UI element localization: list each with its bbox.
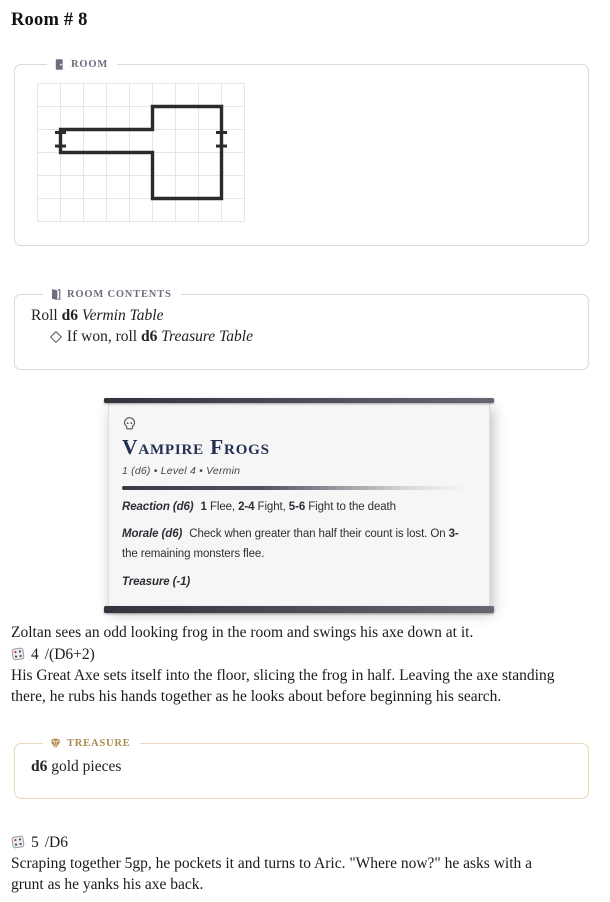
card-top-bar bbox=[104, 398, 494, 403]
story-paragraph-2: His Great Axe sets itself into the floor… bbox=[0, 665, 610, 707]
treasure-panel: TREASURE d6 gold pieces bbox=[14, 737, 589, 799]
page-title: Room # 8 bbox=[11, 10, 610, 31]
story-paragraph-1: Zoltan sees an odd looking frog in the r… bbox=[0, 622, 610, 643]
contents-subline-text: If won, roll d6 Treasure Table bbox=[67, 328, 253, 345]
treasure-legend: TREASURE bbox=[43, 737, 140, 750]
story-paragraph-1-text: Zoltan sees an odd looking frog in the r… bbox=[11, 624, 473, 641]
treasure-label: TREASURE bbox=[67, 738, 131, 749]
journal-page: Room # 8 ROOM ROOM CONTENTS Roll d6 Verm… bbox=[0, 10, 610, 895]
door-icon bbox=[53, 58, 66, 71]
skull-icon bbox=[122, 416, 137, 431]
roll-result: 5 bbox=[31, 832, 39, 853]
morale-stat: Morale (d6)Check when greater than half … bbox=[122, 524, 476, 565]
story-paragraph-3-text: Scraping together 5gp, he pockets it and… bbox=[11, 855, 532, 893]
story-paragraph-3: Scraping together 5gp, he pockets it and… bbox=[0, 853, 610, 895]
card-bottom-bar bbox=[104, 606, 494, 613]
die-icon bbox=[11, 835, 25, 849]
contents-subline: ◇If won, roll d6 Treasure Table bbox=[31, 326, 572, 347]
dice-roll-line-2: 5 /D6 bbox=[11, 832, 610, 853]
monster-card: Vampire Frogs 1 (d6) • Level 4 • Vermin … bbox=[108, 402, 490, 607]
room-contents-legend: ROOM CONTENTS bbox=[43, 288, 181, 301]
monster-name: Vampire Frogs bbox=[122, 435, 476, 460]
reaction-stat: Reaction (d6)1 Flee, 2-4 Fight, 5-6 Figh… bbox=[122, 497, 476, 518]
room-contents-panel: ROOM CONTENTS Roll d6 Vermin Table ◇If w… bbox=[14, 288, 589, 370]
room-map bbox=[35, 81, 247, 224]
diamond-bullet: ◇ bbox=[50, 328, 62, 345]
treasure-stat-label: Treasure (-1) bbox=[122, 576, 190, 588]
room-panel: ROOM bbox=[14, 58, 589, 246]
card-divider bbox=[122, 486, 476, 490]
roll-formula: /D6 bbox=[45, 832, 68, 853]
reaction-text: 1 Flee, 2-4 Fight, 5-6 Fight to the deat… bbox=[201, 501, 396, 513]
roll-result: 4 bbox=[31, 644, 39, 665]
treasure-line: d6 gold pieces bbox=[31, 756, 572, 777]
treasure-line-text: d6 gold pieces bbox=[31, 758, 121, 775]
contents-line-text: Roll d6 Vermin Table bbox=[31, 307, 164, 324]
treasure-stat: Treasure (-1) bbox=[122, 572, 476, 593]
dice-roll-line-1: 4 /(D6+2) bbox=[11, 644, 610, 665]
room-panel-legend: ROOM bbox=[47, 58, 117, 71]
open-door-icon bbox=[49, 288, 62, 301]
die-icon bbox=[11, 647, 25, 661]
morale-label: Morale (d6) bbox=[122, 528, 182, 540]
room-panel-label: ROOM bbox=[71, 59, 108, 70]
contents-line: Roll d6 Vermin Table bbox=[31, 305, 572, 326]
reaction-label: Reaction (d6) bbox=[122, 501, 194, 513]
room-map-wrap bbox=[35, 81, 572, 229]
monster-meta: 1 (d6) • Level 4 • Vermin bbox=[122, 465, 476, 477]
room-contents-label: ROOM CONTENTS bbox=[67, 289, 172, 300]
story-paragraph-2-text: His Great Axe sets itself into the floor… bbox=[11, 667, 554, 705]
gem-icon bbox=[49, 737, 62, 750]
roll-formula: /(D6+2) bbox=[45, 644, 95, 665]
